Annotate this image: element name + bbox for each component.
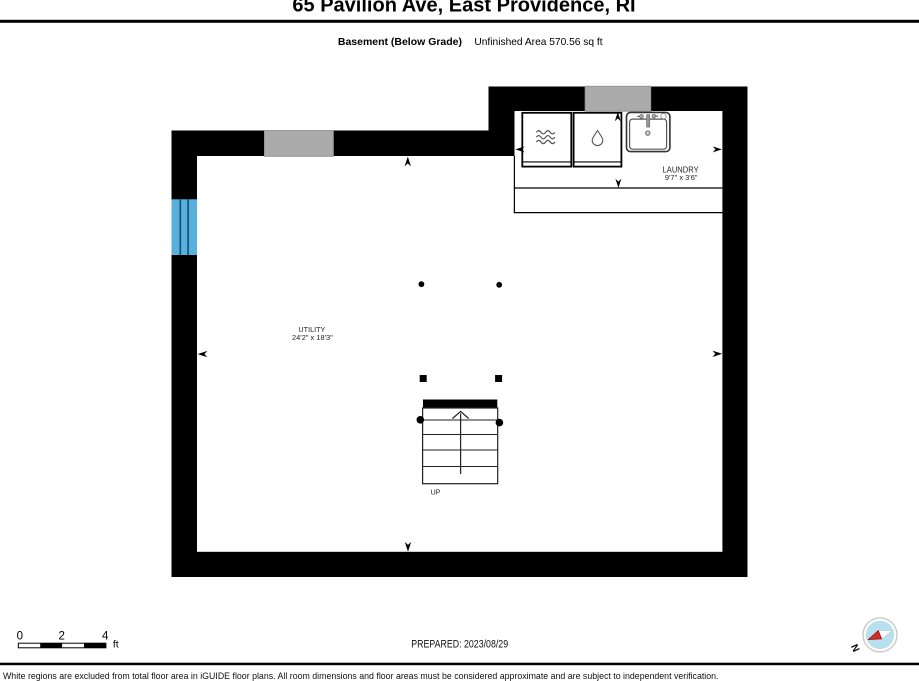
- svg-text:65 Pavilion Ave, East Providen: 65 Pavilion Ave, East Providence, RI: [292, 0, 635, 17]
- svg-text:24'2" x 18'3": 24'2" x 18'3": [292, 335, 333, 342]
- svg-text:9'7" x 3'6": 9'7" x 3'6": [665, 173, 698, 182]
- svg-text:0: 0: [17, 630, 23, 642]
- svg-text:UP: UP: [431, 490, 441, 497]
- svg-text:PREPARED: 2023/08/29: PREPARED: 2023/08/29: [411, 638, 508, 650]
- svg-text:White regions are excluded fro: White regions are excluded from total fl…: [3, 671, 718, 681]
- svg-text:ft: ft: [113, 639, 119, 651]
- svg-text:4: 4: [102, 630, 109, 642]
- svg-text:Unfinished Area 570.56 sq ft: Unfinished Area 570.56 sq ft: [474, 37, 602, 48]
- svg-text:2: 2: [58, 630, 64, 642]
- svg-text:UTILITY: UTILITY: [298, 327, 325, 334]
- svg-text:Basement (Below Grade): Basement (Below Grade): [338, 37, 462, 48]
